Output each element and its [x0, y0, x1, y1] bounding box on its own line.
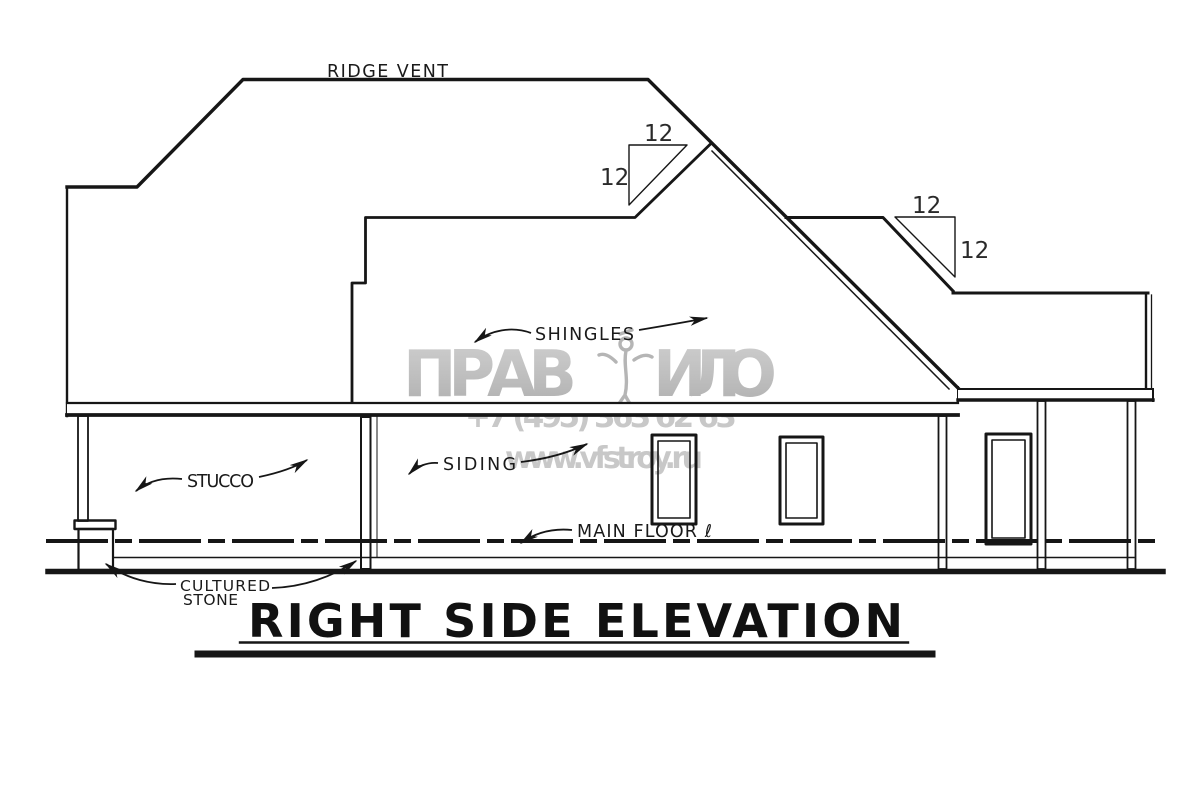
right-wing-door	[986, 434, 1031, 544]
stone-pedestal	[75, 521, 116, 571]
slope-lower-rise-value: 12	[960, 238, 989, 264]
shingles-label: SHINGLES	[535, 325, 635, 345]
slope-upper-rise-value: 12	[600, 165, 629, 191]
slope-upper-run-value: 12	[644, 121, 673, 147]
eave-fascia	[67, 389, 1153, 415]
stucco-leader-right	[259, 460, 307, 477]
cultured-stone-label-line2: STONE	[183, 591, 238, 609]
title-block: RIGHT SIDE ELEVATION	[198, 594, 932, 654]
page-title: RIGHT SIDE ELEVATION	[248, 594, 903, 648]
cultured-stone-leader-right	[272, 561, 356, 588]
right-wing-ridge-and-slope	[786, 218, 953, 292]
ridge-vent-label: RIDGE VENT	[327, 62, 449, 82]
siding-leader-left	[409, 463, 438, 474]
wing-post-right	[1128, 401, 1136, 569]
slope-triangle-lower: 12 12	[895, 193, 989, 277]
stucco-label: STUCCO	[187, 472, 255, 492]
window-2	[780, 437, 823, 524]
center-wall-corner	[361, 417, 371, 569]
wing-post-left	[939, 416, 947, 569]
wing-post-middle	[1038, 401, 1046, 569]
watermark-website: www.vfstroy.ru	[505, 441, 703, 476]
pedestal-base	[79, 529, 114, 570]
siding-label: SIDING	[443, 455, 517, 475]
slope-lower-run-value: 12	[912, 193, 941, 219]
slope-triangle-upper: 12 12	[600, 121, 687, 205]
elevation-sheet: ПРАВ ИЛО +7 (495) 363 62 63 www.vfstroy.…	[0, 0, 1200, 800]
house-drawing: ПРАВ ИЛО +7 (495) 363 62 63 www.vfstroy.…	[0, 0, 1200, 800]
porch-post-left	[78, 416, 88, 521]
main-floor-label: MAIN FLOOR ℓ	[577, 522, 713, 542]
shingles-leader-right	[639, 318, 707, 330]
stucco-leader-left	[136, 479, 182, 492]
